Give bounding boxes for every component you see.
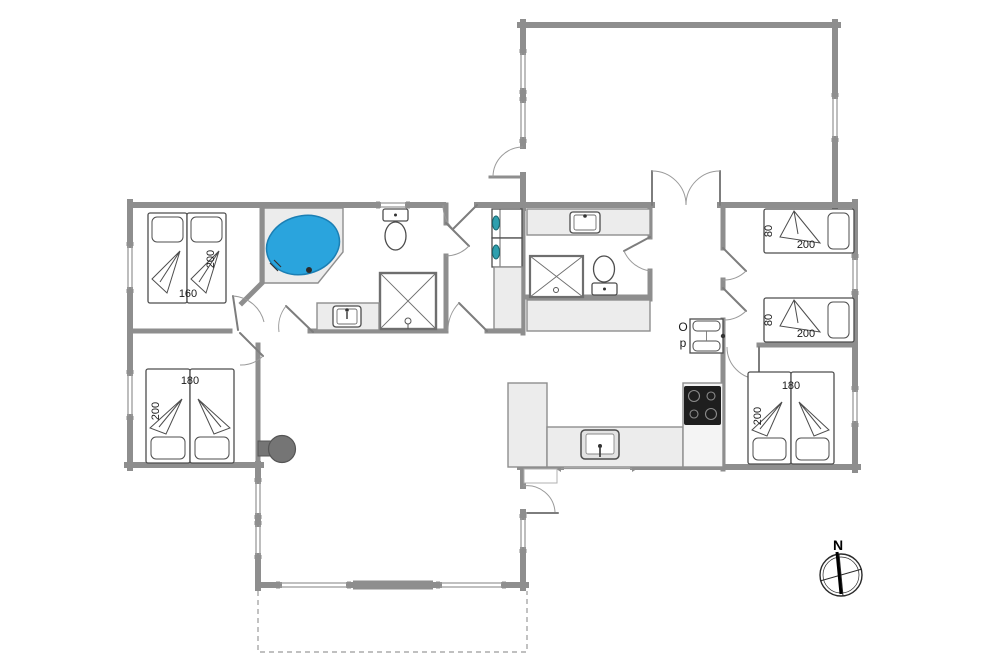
toilet-2: [592, 256, 617, 295]
pillow: [152, 217, 183, 242]
cooktop-icon: [684, 386, 721, 425]
bed-length-label: 200: [797, 328, 815, 340]
window-living-east: [832, 93, 839, 142]
pillow: [828, 213, 849, 249]
pillow: [796, 438, 829, 460]
kitchen: [508, 383, 723, 467]
bed-width-label: 160: [179, 288, 197, 300]
washer-door-icon: [493, 216, 500, 230]
window-living-west-1: [520, 49, 527, 94]
pillow: [828, 302, 849, 338]
bedroom-right-upper-door: [723, 248, 746, 280]
op-label-line2: p: [680, 336, 687, 350]
bedroom1-door: [233, 296, 264, 330]
bay-exterior-door: [523, 469, 558, 513]
op-furniture: O p: [678, 319, 725, 353]
bed-length-label: 200: [205, 250, 217, 268]
hall-to-living-door: [448, 303, 487, 331]
wood-stove-icon: [269, 436, 296, 463]
hall-closet-door: [446, 223, 469, 256]
wall-living-wing: [520, 22, 838, 208]
shower-1: [380, 273, 436, 329]
pillow: [151, 437, 185, 459]
washer-dryer-stack: [492, 209, 522, 267]
pillow: [195, 437, 229, 459]
bed-double-top-left: 160 200: [148, 213, 226, 303]
window-east-2: [852, 386, 859, 427]
bathroom-second: [492, 209, 650, 331]
faucet-dot: [598, 444, 602, 448]
compass-needle: [837, 552, 841, 594]
wall-bay: [258, 464, 526, 588]
bed-single-right-lower: 80 200: [763, 298, 854, 342]
bed-length-label: 200: [797, 239, 815, 251]
toilet-1: [383, 209, 408, 250]
window-bedroom2-west: [127, 370, 134, 420]
pillow: [191, 217, 222, 242]
exterior-step: [524, 469, 557, 483]
kitchen-sink: [581, 430, 619, 459]
window-living-west-2: [520, 97, 527, 143]
bed-width-label: 80: [763, 225, 775, 237]
compass-north-label: N: [833, 537, 843, 553]
wood-stove: [258, 436, 296, 463]
bed-width-label: 180: [782, 380, 800, 392]
dryer-door-icon: [493, 245, 500, 259]
living-double-doors: [652, 171, 720, 205]
bed-length-label: 200: [752, 407, 764, 425]
window-bay-south-1: [276, 582, 351, 589]
bed-width-label: 180: [181, 375, 199, 387]
bed-single-right-upper: 80 200: [763, 209, 854, 253]
wall-bath1-west: [242, 205, 262, 303]
bathtub-drain: [306, 267, 312, 273]
window-bay-west-1: [255, 478, 262, 519]
pillow: [753, 438, 786, 460]
sink-cabinet-1: [317, 303, 379, 330]
window-bedroom1-west: [127, 242, 134, 293]
shower-2: [530, 256, 583, 297]
window-bay-south-2: [436, 582, 506, 589]
compass-icon: N: [820, 537, 862, 596]
bed-width-label: 80: [763, 314, 775, 326]
op-label-line1: O: [678, 320, 687, 334]
faucet-dot: [345, 308, 349, 312]
bed-length-label: 200: [150, 402, 162, 420]
bedroom-right-lower-door: [723, 288, 746, 320]
wall-anchor-dot: [721, 334, 725, 338]
bed-double-bottom-right: 180 200: [748, 372, 834, 464]
faucet-dot: [583, 214, 587, 218]
terrace-outline: [258, 591, 527, 652]
window-east-1: [852, 254, 859, 295]
bathroom-main: [259, 207, 436, 330]
living-west-exterior-door: [493, 147, 523, 177]
kitchen-peninsula: [508, 383, 547, 467]
floor-plan-drawing: 160 200 180 200 80 200 80 200 180: [0, 0, 1000, 667]
kitchen-sideboard: [527, 300, 650, 331]
sink-counter-2: [527, 209, 650, 235]
utility-cabinet: [494, 267, 522, 329]
bath2-door: [624, 237, 650, 271]
bed-double-bottom-left: 180 200: [146, 369, 234, 463]
floor-plan-canvas: 160 200 180 200 80 200 80 200 180: [0, 0, 1000, 667]
bath1-door: [279, 306, 313, 332]
window-bath1-north: [376, 202, 410, 209]
exterior-walls: [127, 22, 858, 588]
